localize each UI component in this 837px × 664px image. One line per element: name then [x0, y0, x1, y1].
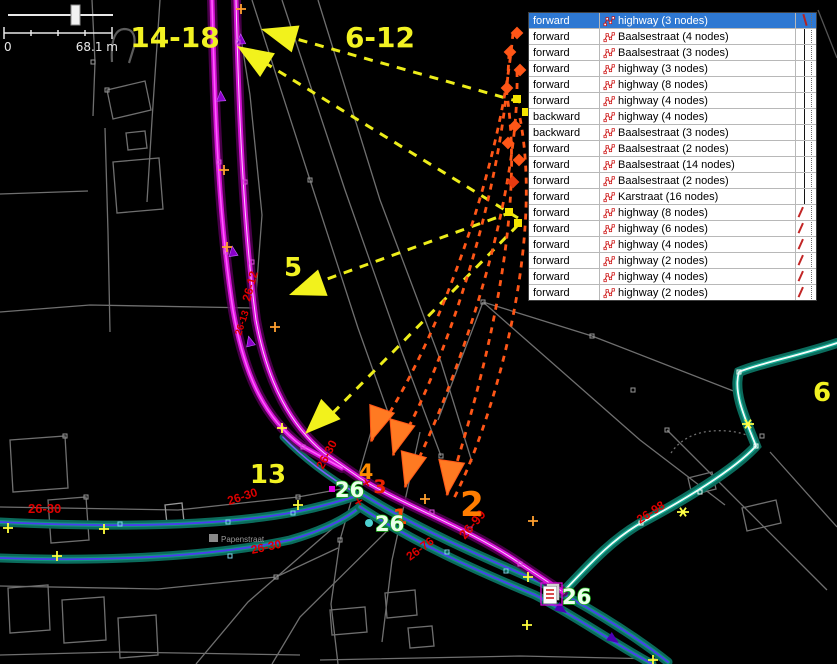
member-role: forward — [529, 93, 600, 108]
member-role: forward — [529, 61, 600, 76]
member-connectivity-icon — [796, 189, 816, 204]
way-icon — [603, 63, 615, 75]
label-6-12: 6-12 — [345, 21, 415, 54]
member-name-cell: highway (6 nodes) — [600, 221, 796, 236]
badge-node-cyan — [365, 519, 373, 527]
svg-text:26-30: 26-30 — [28, 501, 61, 516]
member-connectivity-icon — [796, 109, 816, 124]
relation-member-row[interactable]: forward Baalsestraat (3 nodes) — [529, 45, 816, 61]
way-icon — [603, 111, 615, 123]
member-name-cell: Baalsestraat (4 nodes) — [600, 29, 796, 44]
way-icon — [603, 95, 615, 107]
member-way-name: highway (6 nodes) — [618, 223, 708, 235]
relation-member-row[interactable]: forward highway (2 nodes) — [529, 253, 816, 269]
label-2: 2 — [460, 485, 484, 525]
member-name-cell: Baalsestraat (2 nodes) — [600, 173, 796, 188]
way-icon — [603, 127, 615, 139]
relation-member-row[interactable]: forward highway (8 nodes) — [529, 77, 816, 93]
relation-members-list[interactable]: forward highway (3 nodes) forward Baalse… — [529, 13, 816, 300]
member-connectivity-icon — [796, 61, 816, 76]
member-role: forward — [529, 285, 600, 300]
member-role: forward — [529, 141, 600, 156]
member-connectivity-icon — [796, 125, 816, 140]
member-connectivity-icon — [796, 221, 816, 236]
member-way-name: highway (2 nodes) — [618, 255, 708, 267]
relation-member-row[interactable]: backward highway (4 nodes) — [529, 109, 816, 125]
member-name-cell: Karstraat (16 nodes) — [600, 189, 796, 204]
label-3: 3 — [373, 476, 386, 498]
badge-26-b: 26 — [375, 512, 404, 536]
way-icon — [603, 271, 615, 283]
member-role: forward — [529, 29, 600, 44]
way-icon — [603, 175, 615, 187]
scale-zero: 0 — [4, 40, 12, 54]
member-name-cell: highway (8 nodes) — [600, 205, 796, 220]
relation-member-row[interactable]: forward Baalsestraat (14 nodes) — [529, 157, 816, 173]
svg-text:Papenstraat: Papenstraat — [221, 535, 265, 544]
member-way-name: highway (2 nodes) — [618, 287, 708, 299]
member-way-name: Karstraat (16 nodes) — [618, 191, 718, 203]
way-icon — [603, 31, 615, 43]
member-role: forward — [529, 77, 600, 92]
scale-max: 68.1 m — [76, 40, 118, 54]
member-way-name: Baalsestraat (3 nodes) — [618, 127, 729, 139]
way-icon — [603, 47, 615, 59]
member-way-name: highway (4 nodes) — [618, 239, 708, 251]
member-connectivity-icon — [796, 269, 816, 284]
member-name-cell: Baalsestraat (2 nodes) — [600, 141, 796, 156]
member-way-name: highway (4 nodes) — [618, 271, 708, 283]
relation-member-row[interactable]: forward highway (8 nodes) — [529, 205, 816, 221]
member-connectivity-icon — [796, 45, 816, 60]
member-way-name: Baalsestraat (3 nodes) — [618, 47, 729, 59]
member-connectivity-icon — [796, 285, 816, 300]
member-connectivity-icon — [796, 237, 816, 252]
zoom-slider-handle[interactable] — [71, 5, 80, 25]
relation-member-row[interactable]: forward highway (4 nodes) — [529, 237, 816, 253]
relation-member-row[interactable]: forward Baalsestraat (2 nodes) — [529, 173, 816, 189]
relation-member-row[interactable]: forward Baalsestraat (2 nodes) — [529, 141, 816, 157]
way-icon — [603, 207, 615, 219]
member-name-cell: highway (2 nodes) — [600, 285, 796, 300]
way-icon — [603, 255, 615, 267]
relation-member-row[interactable]: forward Karstraat (16 nodes) — [529, 189, 816, 205]
way-icon — [603, 239, 615, 251]
label-5: 5 — [284, 253, 302, 283]
member-name-cell: highway (4 nodes) — [600, 237, 796, 252]
member-role: forward — [529, 189, 600, 204]
member-way-name: highway (4 nodes) — [618, 95, 708, 107]
relation-member-row[interactable]: forward highway (3 nodes) — [529, 61, 816, 77]
member-name-cell: Baalsestraat (3 nodes) — [600, 125, 796, 140]
relation-member-row[interactable]: forward highway (2 nodes) — [529, 285, 816, 300]
way-icon — [603, 223, 615, 235]
member-name-cell: highway (4 nodes) — [600, 109, 796, 124]
relation-members-panel[interactable]: forward highway (3 nodes) forward Baalse… — [528, 12, 817, 301]
member-way-name: highway (4 nodes) — [618, 111, 708, 123]
member-way-name: highway (8 nodes) — [618, 79, 708, 91]
member-way-name: highway (3 nodes) — [618, 15, 708, 27]
label-14-18: 14-18 — [130, 21, 220, 54]
member-connectivity-icon — [796, 205, 816, 220]
member-way-name: Baalsestraat (4 nodes) — [618, 31, 729, 43]
member-name-cell: highway (3 nodes) — [600, 61, 796, 76]
member-name-cell: Baalsestraat (14 nodes) — [600, 157, 796, 172]
relation-member-row[interactable]: forward highway (3 nodes) — [529, 13, 816, 29]
badge-26-c: 26 — [562, 585, 591, 609]
relation-member-row[interactable]: forward highway (6 nodes) — [529, 221, 816, 237]
relation-member-row[interactable]: forward Baalsestraat (4 nodes) — [529, 29, 816, 45]
member-role: forward — [529, 237, 600, 252]
member-role: forward — [529, 157, 600, 172]
member-connectivity-icon — [796, 93, 816, 108]
member-role: forward — [529, 269, 600, 284]
member-connectivity-icon — [796, 141, 816, 156]
member-role: forward — [529, 173, 600, 188]
member-role: forward — [529, 13, 600, 28]
member-connectivity-icon — [796, 157, 816, 172]
way-icon — [603, 143, 615, 155]
label-6: 6 — [813, 378, 831, 408]
member-way-name: highway (3 nodes) — [618, 63, 708, 75]
member-way-name: Baalsestraat (2 nodes) — [618, 143, 729, 155]
member-role: backward — [529, 109, 600, 124]
way-icon — [603, 159, 615, 171]
member-connectivity-icon — [796, 173, 816, 188]
member-role: forward — [529, 45, 600, 60]
member-connectivity-icon — [796, 253, 816, 268]
member-name-cell: highway (8 nodes) — [600, 77, 796, 92]
relation-member-row[interactable]: forward highway (4 nodes) — [529, 93, 816, 109]
member-connectivity-icon — [796, 77, 816, 92]
member-way-name: highway (8 nodes) — [618, 207, 708, 219]
member-connectivity-icon — [796, 29, 816, 44]
badge-26-a: 26 — [335, 478, 364, 502]
member-name-cell: highway (4 nodes) — [600, 93, 796, 108]
way-icon — [603, 79, 615, 91]
relation-member-row[interactable]: backward Baalsestraat (3 nodes) — [529, 125, 816, 141]
member-connectivity-icon — [796, 13, 816, 28]
member-name-cell: highway (4 nodes) — [600, 269, 796, 284]
josm-map-canvas[interactable]: 26-12 26-13 26-30 26-30 26-30 26-30 26-7… — [0, 0, 837, 664]
member-name-cell: Baalsestraat (3 nodes) — [600, 45, 796, 60]
street-icon — [209, 534, 218, 542]
way-icon — [603, 15, 615, 27]
way-icon — [603, 287, 615, 299]
member-way-name: Baalsestraat (14 nodes) — [618, 159, 735, 171]
way-icon — [603, 191, 615, 203]
member-name-cell: highway (3 nodes) — [600, 13, 796, 28]
member-name-cell: highway (2 nodes) — [600, 253, 796, 268]
member-role: backward — [529, 125, 600, 140]
member-role: forward — [529, 253, 600, 268]
label-13: 13 — [250, 460, 286, 490]
member-way-name: Baalsestraat (2 nodes) — [618, 175, 729, 187]
member-role: forward — [529, 205, 600, 220]
relation-member-row[interactable]: forward highway (4 nodes) — [529, 269, 816, 285]
member-role: forward — [529, 221, 600, 236]
